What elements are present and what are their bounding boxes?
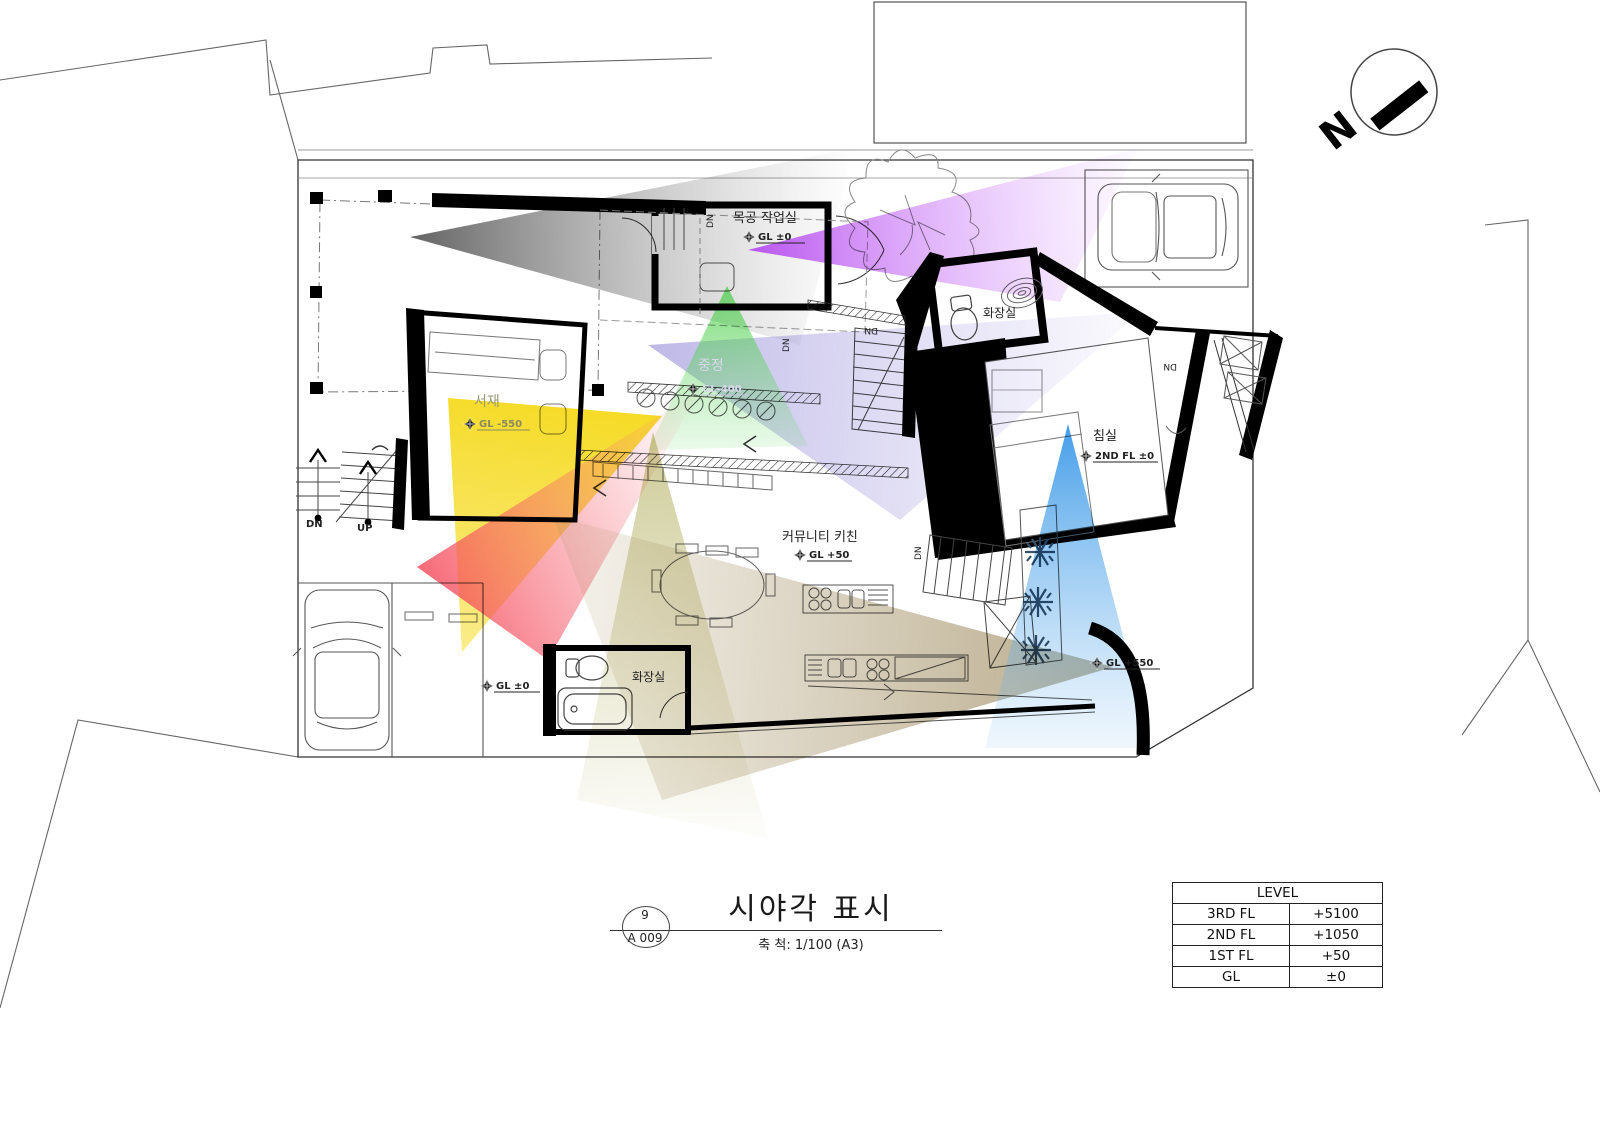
- level-value: +50: [1290, 946, 1383, 967]
- level-name: 3RD FL: [1173, 904, 1290, 925]
- table-row: 1ST FL +50: [1173, 946, 1383, 967]
- room-label-study: 서재: [474, 394, 500, 410]
- north-label: N: [1311, 103, 1366, 160]
- level-label-courtyard: GL-400: [702, 384, 742, 395]
- car-bottom-icon: [293, 590, 401, 750]
- level-label-woodshop: GL ±0: [758, 232, 791, 243]
- room-label-bathroom-lower: 화장실: [632, 670, 665, 684]
- drawing-title: 시야각 표시: [680, 884, 942, 928]
- level-label-study: GL -550: [479, 419, 522, 430]
- room-label-bathroom-upper: 화장실: [983, 306, 1016, 320]
- stair-label-dn-4: DN: [864, 325, 878, 335]
- level-name: 2ND FL: [1173, 925, 1290, 946]
- level-value: +1050: [1290, 925, 1383, 946]
- room-label-courtyard: 중정: [698, 358, 724, 374]
- stair-label-dn-6: DN: [914, 546, 924, 560]
- car-top-icon: [1098, 174, 1238, 280]
- level-label-terrace: GL +550: [1106, 658, 1153, 669]
- level-label-bedroom: 2ND FL ±0: [1095, 451, 1154, 462]
- stair-label-up: UP: [357, 523, 372, 534]
- table-row: GL ±0: [1173, 967, 1383, 988]
- sheet-number: 9: [622, 908, 668, 922]
- sheet-canvas: 목공 작업실 GL ±0 중정 GL-400 서재 GL -550 침실 2ND…: [0, 0, 1600, 1124]
- stair-label-dn-3: DN: [782, 338, 792, 352]
- site-context-lines: [0, 2, 1600, 1008]
- table-row: 2ND FL +1050: [1173, 925, 1383, 946]
- level-value: +5100: [1290, 904, 1383, 925]
- stair-left: [296, 444, 402, 522]
- level-table: LEVEL 3RD FL +5100 2ND FL +1050 1ST FL +…: [1172, 882, 1383, 988]
- room-label-kitchen: 커뮤니티 키친: [782, 530, 858, 545]
- stair-label-dn-2: DN: [706, 214, 716, 228]
- room-label-bedroom: 침실: [1093, 429, 1117, 444]
- north-arrow-icon: N: [1311, 49, 1437, 160]
- level-name: GL: [1173, 967, 1290, 988]
- level-value: ±0: [1290, 967, 1383, 988]
- table-row: 3RD FL +5100: [1173, 904, 1383, 925]
- parking-stall-bottom: [293, 583, 483, 757]
- level-label-kitchen: GL +50: [809, 550, 849, 561]
- sheet-code: A 009: [620, 931, 670, 945]
- drawing-scale: 축 척: 1/100 (A3): [680, 934, 942, 953]
- level-label-entry: GL ±0: [496, 681, 529, 692]
- room-label-woodshop: 목공 작업실: [733, 211, 797, 226]
- level-name: 1ST FL: [1173, 946, 1290, 967]
- level-table-header: LEVEL: [1173, 883, 1383, 904]
- stair-label-dn-5: DN: [1163, 361, 1177, 371]
- stair-label-dn-1: DN: [306, 519, 323, 530]
